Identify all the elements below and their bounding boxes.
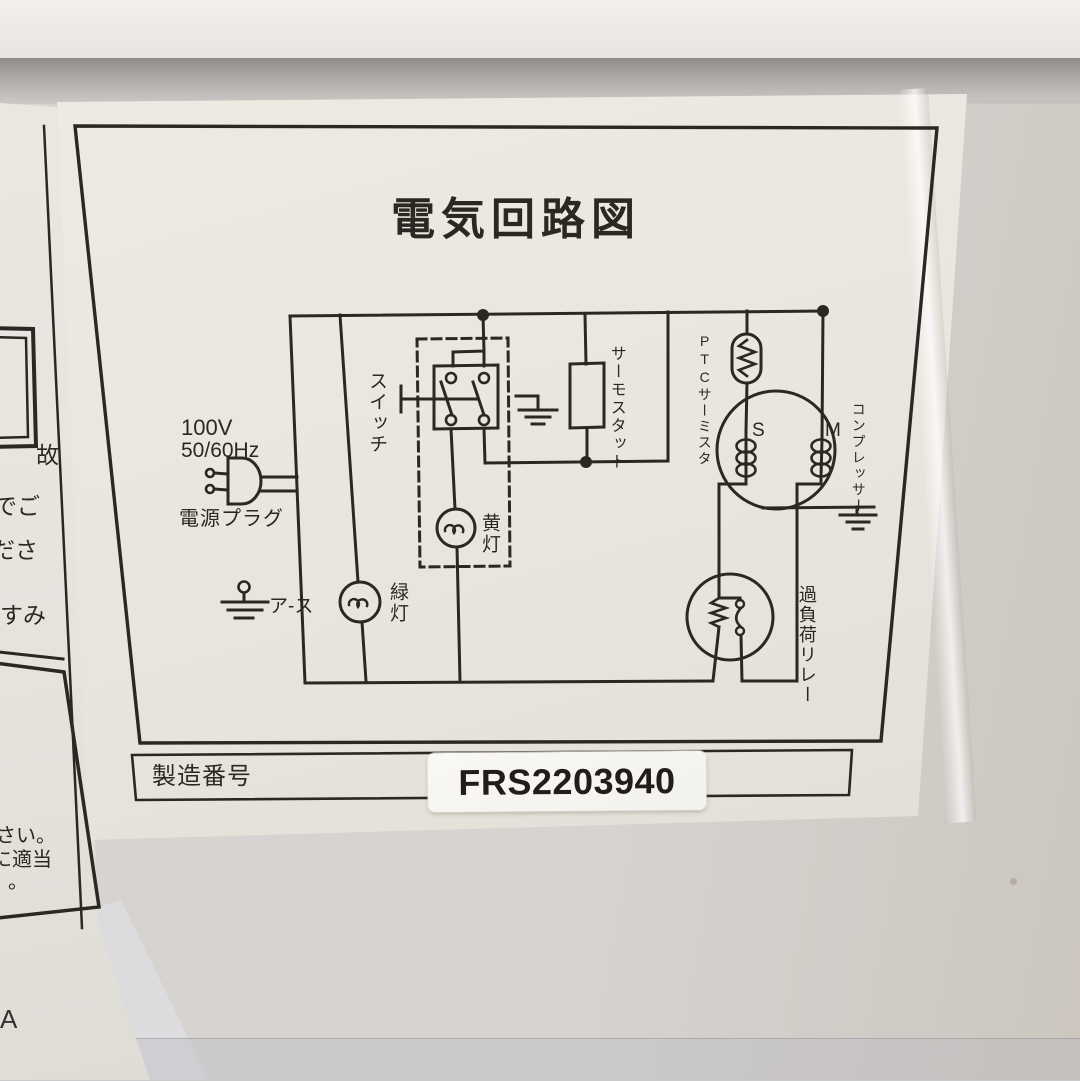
yellow-lamp-label: 黄灯 — [479, 513, 499, 555]
left-label-print — [0, 126, 99, 928]
label-title: 電気回路図 — [391, 197, 641, 243]
ptc-thermistor-symbol — [732, 311, 761, 431]
frequency-text: 50/60Hz — [181, 440, 259, 462]
left-label-fragment-text: 故 — [36, 443, 59, 467]
left-label-fragment-text: さい。 — [0, 826, 56, 847]
ptc-thermistor-label: PTCサーミスタ — [697, 333, 712, 467]
voltage-text: 100V — [181, 416, 232, 439]
serial-number-sticker: FRS2203940 — [428, 751, 707, 812]
green-lamp-label: 緑灯 — [387, 582, 407, 624]
thermostat-symbol — [516, 315, 604, 462]
left-label-fragment-text: でご — [0, 494, 40, 518]
left-label-fragment-text: ださ — [0, 538, 38, 562]
earth-label: ア-ス — [269, 597, 313, 617]
left-label-fragment-text: すみ — [0, 603, 46, 627]
serial-field-label: 製造番号 — [152, 764, 252, 789]
left-label-fragment-text: 。 — [8, 872, 28, 893]
stray-letter: A — [0, 1006, 17, 1033]
overload-relay-symbol — [687, 574, 773, 681]
ptc-kana-part: サーミスタ — [697, 387, 713, 467]
left-label-fragment-text: に適当 — [0, 850, 52, 871]
serial-number-value: FRS2203940 — [458, 760, 676, 804]
power-plug-label: 電源プラグ — [179, 509, 284, 530]
photo-of-appliance-label: { "photo": { "main_label": { "title": "電… — [0, 0, 1080, 1080]
power-plug-symbol — [206, 458, 297, 504]
green-lamp-symbol — [340, 315, 380, 681]
circuit-line-art — [0, 0, 1080, 1080]
overload-relay-label: 過負荷リレー — [797, 585, 816, 705]
earth-symbol — [222, 582, 268, 619]
ptc-latin-part: PTC — [697, 333, 713, 387]
compressor-label: コンプレッサー — [851, 402, 866, 514]
switch-label: スイッチ — [366, 371, 386, 455]
winding-s-label: S — [752, 421, 765, 441]
thermostat-label: サーモスタット — [607, 345, 624, 471]
winding-m-label: M — [825, 421, 841, 441]
switch-symbol — [401, 311, 498, 430]
yellow-lamp-symbol — [437, 429, 475, 681]
